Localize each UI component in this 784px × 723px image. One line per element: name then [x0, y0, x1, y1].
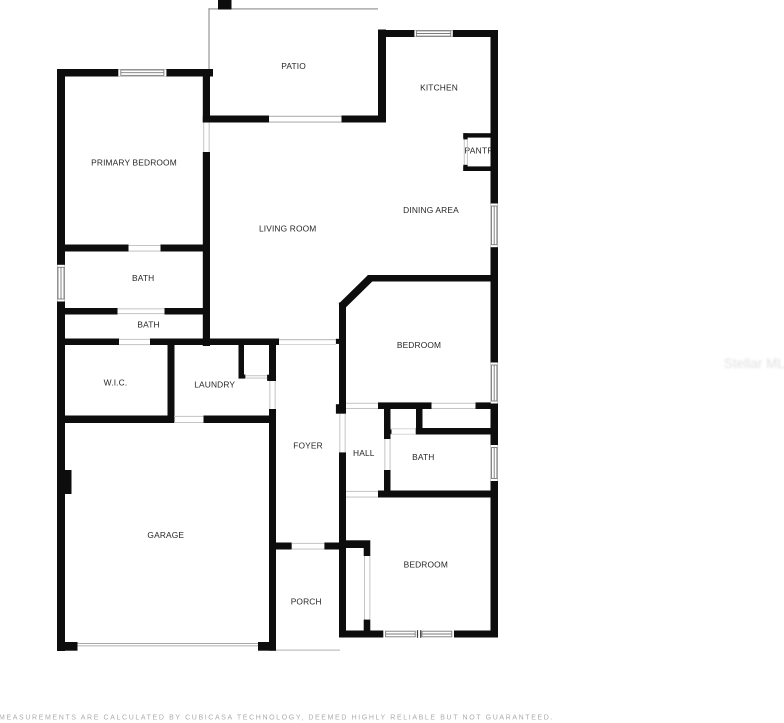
svg-text:PORCH: PORCH	[291, 596, 322, 606]
svg-text:PRIMARY BEDROOM: PRIMARY BEDROOM	[91, 158, 177, 168]
svg-text:BATH: BATH	[412, 452, 434, 462]
svg-text:Stellar MLS: Stellar MLS	[724, 356, 784, 371]
svg-text:LAUNDRY: LAUNDRY	[194, 379, 235, 389]
svg-text:HALL: HALL	[353, 448, 375, 458]
svg-text:MEASUREMENTS ARE CALCULATED BY: MEASUREMENTS ARE CALCULATED BY CUBICASA …	[0, 715, 554, 722]
svg-text:LIVING ROOM: LIVING ROOM	[259, 224, 317, 234]
svg-text:BEDROOM: BEDROOM	[404, 560, 448, 570]
svg-text:DINING AREA: DINING AREA	[403, 205, 459, 215]
svg-text:FOYER: FOYER	[293, 440, 323, 450]
svg-text:KITCHEN: KITCHEN	[420, 83, 458, 93]
svg-text:BATH: BATH	[137, 320, 159, 330]
svg-text:W.I.C.: W.I.C.	[104, 378, 128, 388]
svg-text:GARAGE: GARAGE	[147, 530, 184, 540]
svg-text:BEDROOM: BEDROOM	[397, 340, 441, 350]
svg-text:BATH: BATH	[132, 273, 154, 283]
svg-text:PATIO: PATIO	[281, 61, 306, 71]
